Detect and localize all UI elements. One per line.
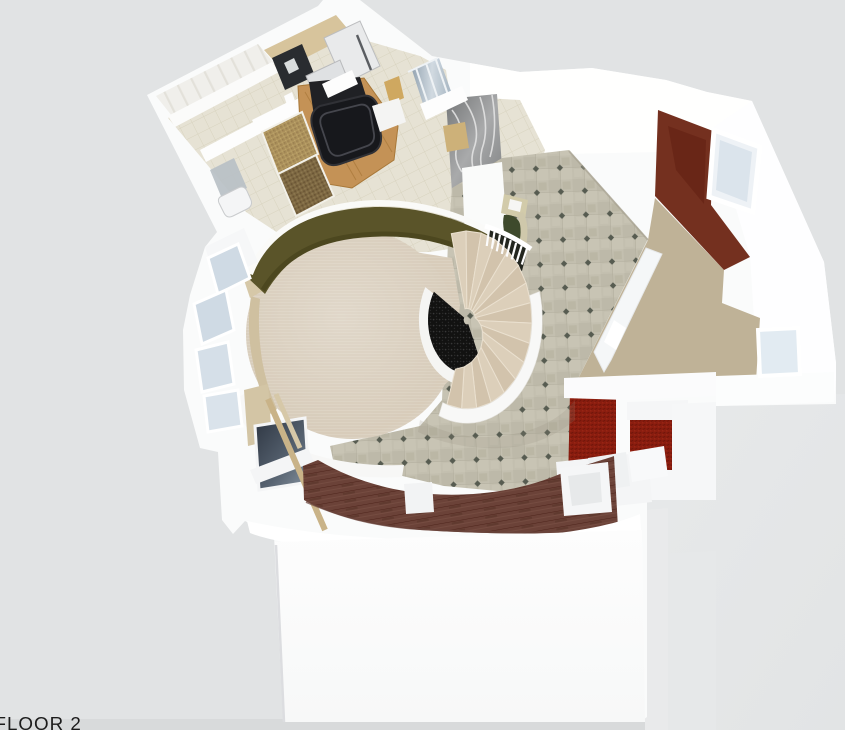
svg-text:FLOOR 2: FLOOR 2: [0, 713, 82, 730]
